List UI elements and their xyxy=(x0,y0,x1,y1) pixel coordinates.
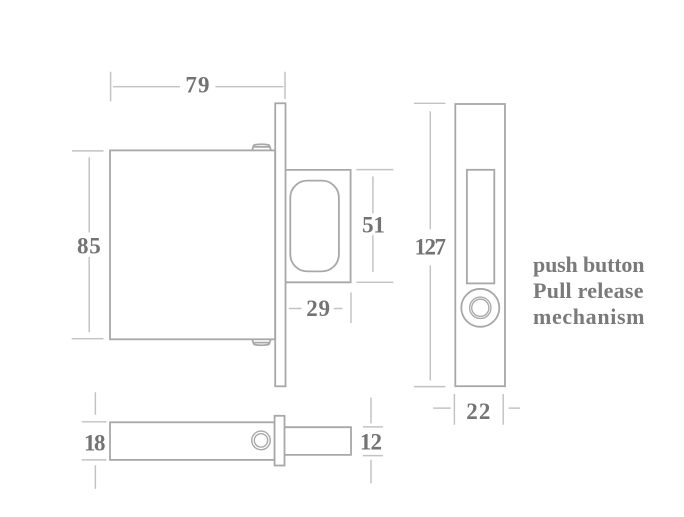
svg-text:22: 22 xyxy=(466,399,490,424)
svg-text:push button: push button xyxy=(533,252,645,277)
svg-text:12: 12 xyxy=(360,430,382,455)
svg-text:85: 85 xyxy=(77,233,101,258)
svg-text:79: 79 xyxy=(185,73,209,98)
svg-text:18: 18 xyxy=(84,431,106,456)
svg-text:Pull release: Pull release xyxy=(533,278,644,303)
svg-text:29: 29 xyxy=(306,296,330,321)
svg-text:127: 127 xyxy=(415,235,447,260)
svg-text:mechanism: mechanism xyxy=(533,304,645,329)
svg-text:51: 51 xyxy=(362,212,385,237)
